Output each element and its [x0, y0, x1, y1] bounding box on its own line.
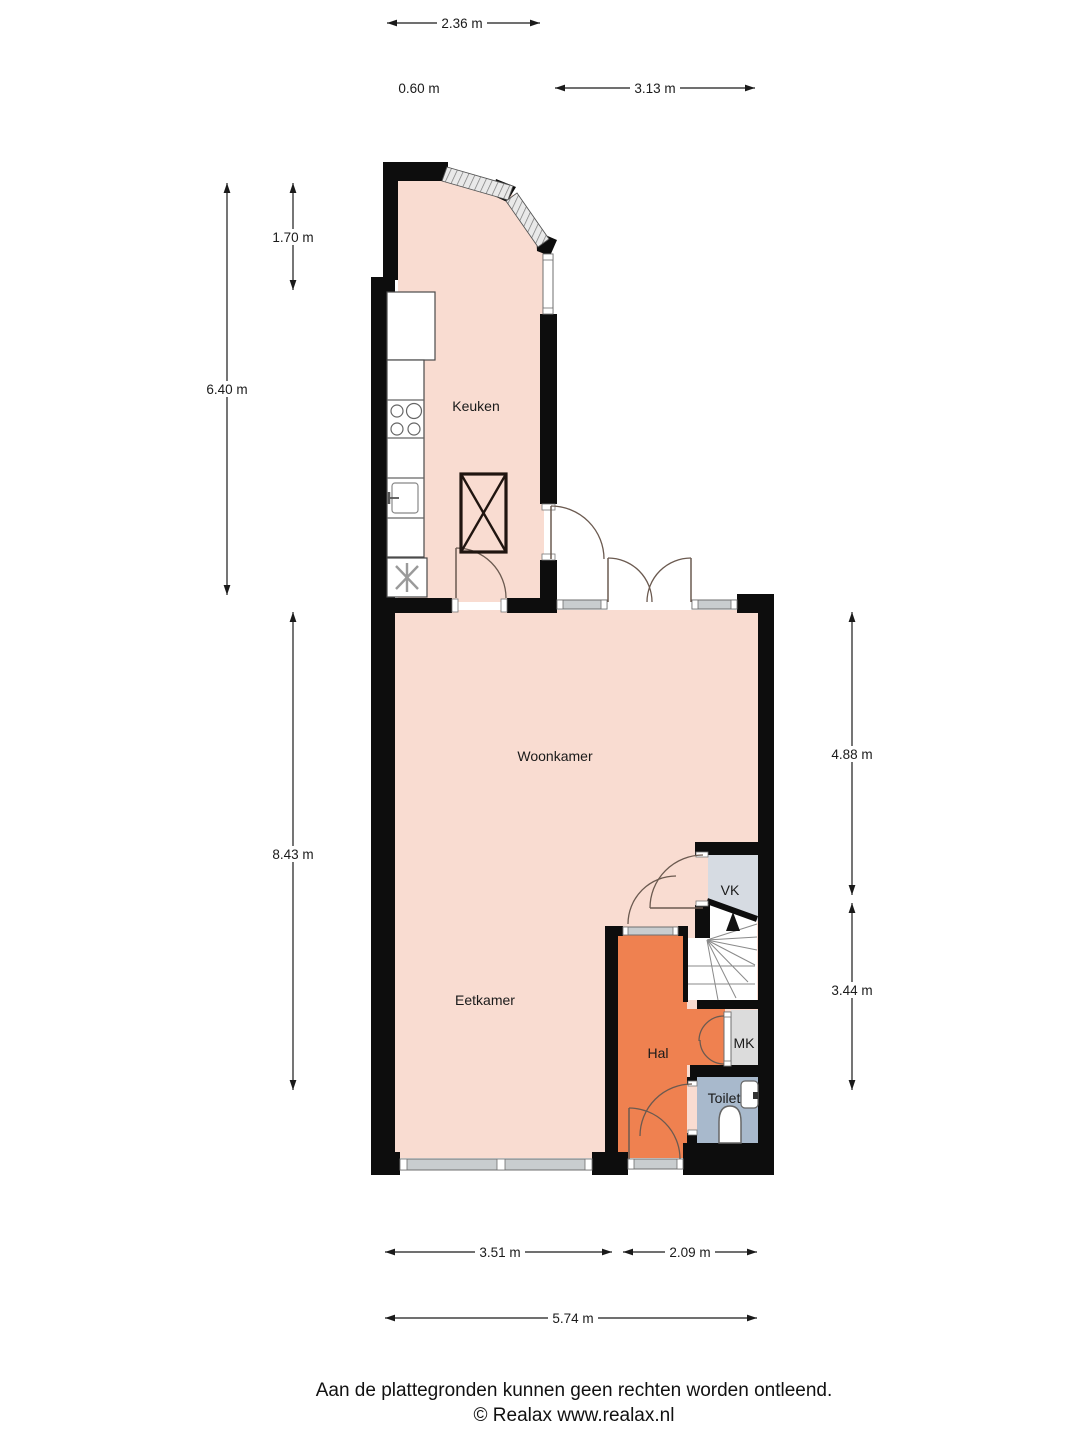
svg-text:3.51 m: 3.51 m	[479, 1245, 520, 1260]
door-sill	[688, 1130, 697, 1135]
wall-right-main	[758, 608, 774, 1175]
wall-stairs-left	[683, 928, 688, 1002]
living-top-window-right	[692, 600, 737, 609]
window-cap	[677, 1159, 683, 1169]
footer: Aan de plattegronden kunnen geen rechten…	[316, 1380, 833, 1426]
living-top-window-left	[557, 600, 607, 609]
dimension-hall-right-height: 3.44 m	[827, 903, 877, 1090]
eetkamer-bottom-window	[400, 1159, 592, 1170]
svg-text:0.60 m: 0.60 m	[398, 81, 439, 96]
dimension-living-right-height: 4.88 m	[827, 612, 877, 895]
label-woonkamer: Woonkamer	[517, 748, 593, 764]
dimension-hal-width: 2.09 m	[623, 1244, 757, 1260]
window-cap	[724, 1061, 731, 1066]
dimension-living-left-height: 8.43 m	[268, 612, 318, 1090]
kitchen-counter	[387, 360, 424, 557]
svg-text:1.70 m: 1.70 m	[272, 230, 313, 245]
dimension-wall-offset: 0.60 m	[398, 81, 439, 96]
room-fills	[395, 172, 758, 1158]
wall-hal-north-pier-right	[678, 926, 688, 936]
footer-copyright: © Realax www.realax.nl	[474, 1405, 675, 1426]
label-toilet: Toilet	[708, 1090, 741, 1106]
window-cap	[557, 600, 563, 609]
door-sill	[696, 901, 708, 906]
wall-bottom-left-corner	[371, 1152, 400, 1175]
svg-text:2.36 m: 2.36 m	[441, 16, 482, 31]
wall-kitchen-right	[540, 314, 557, 504]
dimension-kitchen-top-height: 1.70 m	[268, 183, 318, 290]
door-sill	[452, 599, 458, 612]
hal-north-threshold	[623, 927, 678, 935]
svg-text:8.43 m: 8.43 m	[272, 847, 313, 862]
dimension-eetkamer-width: 3.51 m	[385, 1244, 612, 1260]
wall-kitchen-bottom-pier	[507, 598, 557, 613]
floor-plan-page: Keuken Woonkamer Eetkamer Hal VK MK Toil…	[0, 0, 1080, 1440]
door-sill	[542, 554, 555, 560]
mk-door-strip	[724, 1012, 731, 1066]
svg-text:3.13 m: 3.13 m	[634, 81, 675, 96]
label-eetkamer: Eetkamer	[455, 992, 515, 1008]
svg-text:6.40 m: 6.40 m	[206, 382, 247, 397]
double-door-left-arc	[608, 558, 652, 602]
floor-plan-canvas: Keuken Woonkamer Eetkamer Hal VK MK Toil…	[0, 0, 1080, 1440]
label-mk: MK	[734, 1035, 756, 1051]
kitchen-tall-unit	[387, 292, 435, 360]
wall-kitchen-bottom-left	[395, 598, 452, 613]
window-cap	[543, 308, 553, 314]
svg-text:2.09 m: 2.09 m	[669, 1245, 710, 1260]
window-cap	[497, 1159, 505, 1170]
footer-disclaimer: Aan de plattegronden kunnen geen rechten…	[316, 1380, 833, 1401]
window-cap	[601, 600, 607, 609]
kitchen-side-window	[543, 254, 553, 314]
window-cap	[673, 927, 678, 935]
label-vk: VK	[721, 882, 740, 898]
wall-under-stairs	[697, 1000, 758, 1009]
wall-kitchen-right-stub	[540, 560, 557, 600]
front-door-threshold	[628, 1159, 683, 1169]
window-cap	[543, 254, 553, 260]
window-cap	[628, 1159, 634, 1169]
wall-mk-toilet	[690, 1065, 758, 1077]
window-cap	[585, 1159, 592, 1170]
svg-text:5.74 m: 5.74 m	[552, 1311, 593, 1326]
svg-text:3.44 m: 3.44 m	[831, 983, 872, 998]
door-sill	[542, 504, 555, 510]
wall-bottom-right	[683, 1143, 774, 1175]
label-keuken: Keuken	[452, 398, 499, 414]
label-hal: Hal	[647, 1045, 668, 1061]
dimension-terrace-width: 3.13 m	[555, 80, 755, 96]
window-cap	[724, 1012, 731, 1017]
wall-kitchen-left-upper	[383, 162, 398, 280]
wall-hal-west	[605, 926, 618, 1158]
window-cap	[623, 927, 628, 935]
double-door-right-arc	[647, 558, 691, 602]
svg-text:4.88 m: 4.88 m	[831, 747, 872, 762]
window-cap	[400, 1159, 407, 1170]
wall-bottom-mid-pier	[592, 1152, 628, 1175]
dimension-total-width: 5.74 m	[385, 1310, 757, 1326]
kitchen-exterior-door-arc	[551, 506, 604, 559]
toilet-bowl	[719, 1106, 741, 1143]
dimension-kitchen-width-top: 2.36 m	[387, 15, 540, 31]
basin-tap	[753, 1092, 758, 1099]
wall-vk-west-stub	[695, 905, 710, 938]
window-cap	[692, 600, 698, 609]
door-sill	[501, 599, 507, 612]
dimension-kitchen-left-height: 6.40 m	[202, 183, 252, 595]
window-cap	[731, 600, 737, 609]
